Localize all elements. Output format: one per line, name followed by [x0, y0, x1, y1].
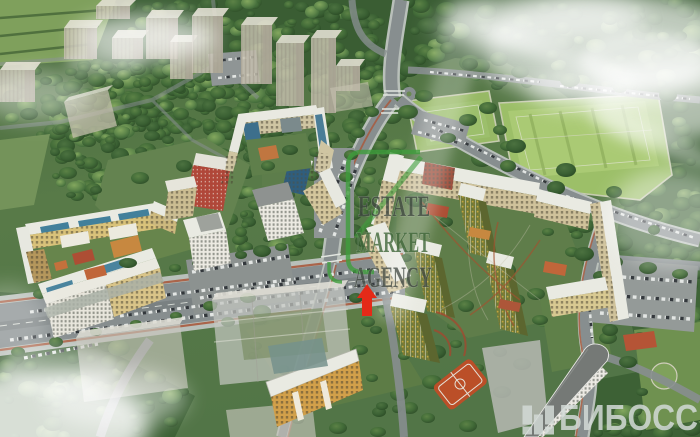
svg-text:ESTATE: ESTATE — [358, 190, 430, 223]
svg-text:MARKET: MARKET — [356, 226, 430, 259]
svg-text:БИБОСС: БИБОСС — [559, 397, 698, 437]
